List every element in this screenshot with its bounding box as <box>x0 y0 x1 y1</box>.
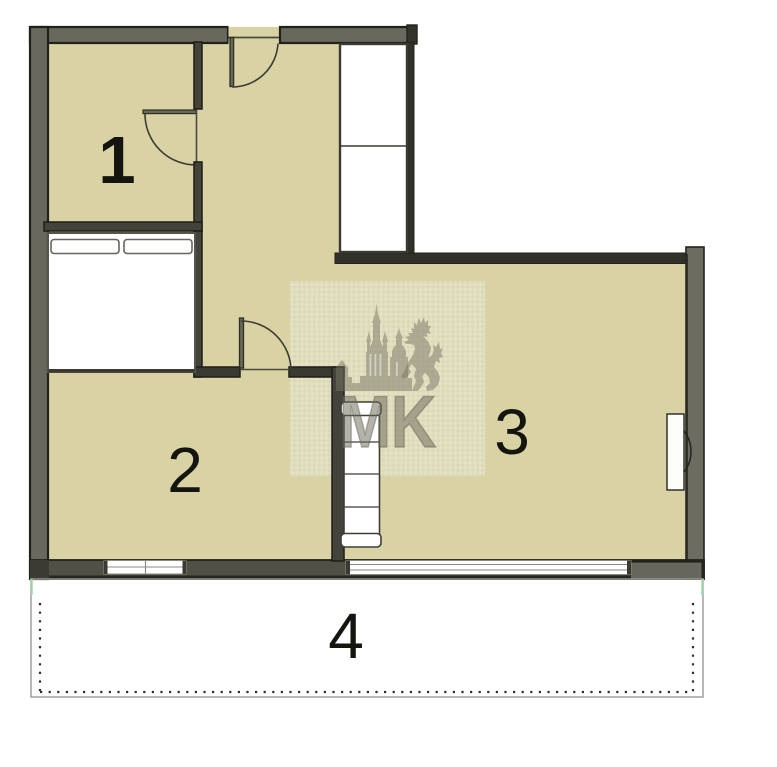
svg-text:1: 1 <box>98 123 135 198</box>
svg-text:MK: MK <box>339 382 436 463</box>
svg-text:2: 2 <box>167 434 203 506</box>
svg-text:3: 3 <box>494 396 530 468</box>
svg-text:4: 4 <box>328 600 364 672</box>
